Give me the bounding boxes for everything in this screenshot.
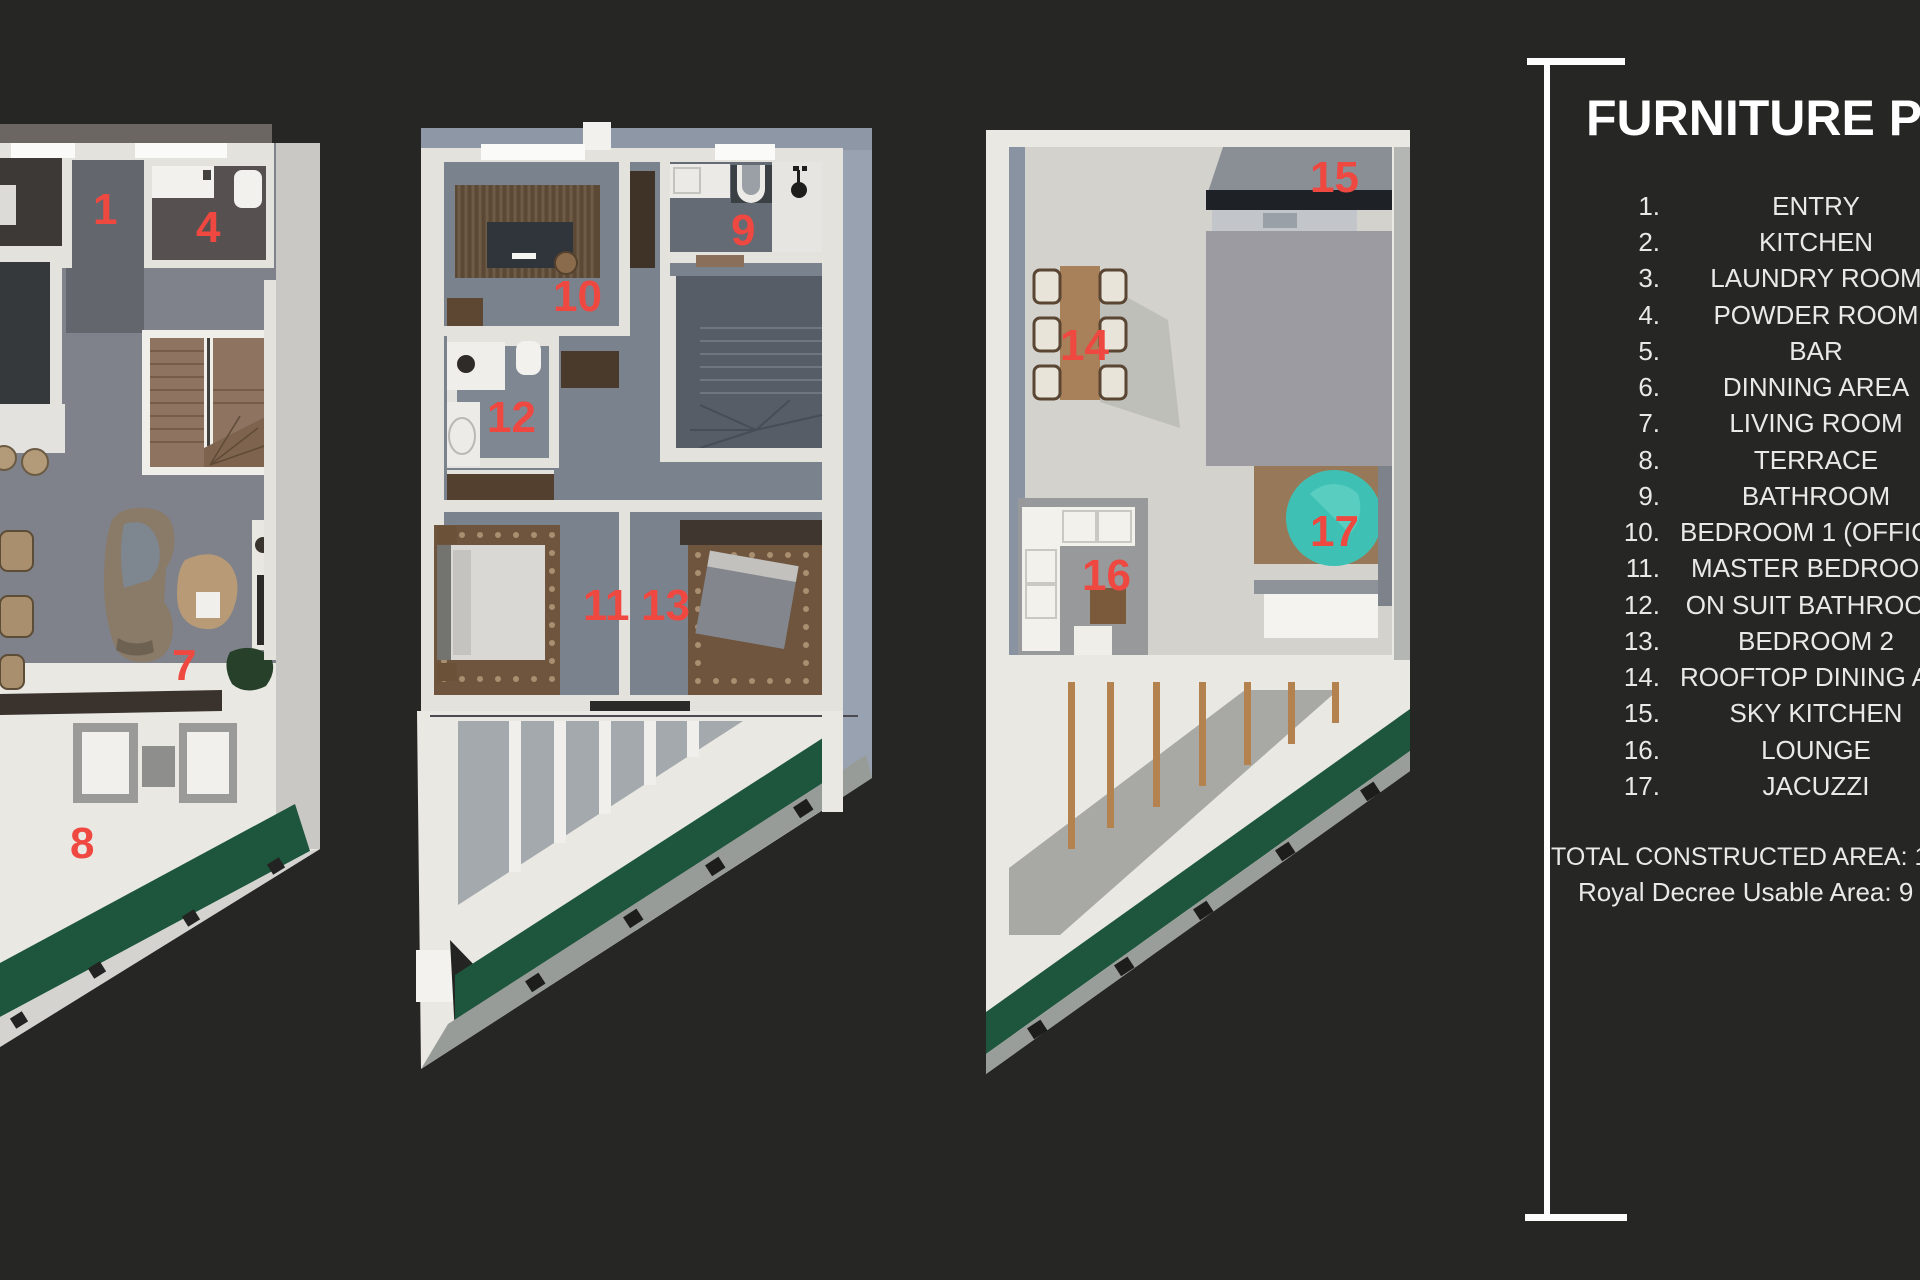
svg-text:1: 1 <box>93 185 117 234</box>
svg-text:7: 7 <box>172 641 196 690</box>
svg-text:4: 4 <box>196 203 221 252</box>
svg-text:13: 13 <box>641 581 690 630</box>
svg-text:9: 9 <box>731 206 755 255</box>
svg-text:17: 17 <box>1310 507 1359 556</box>
svg-text:12: 12 <box>487 393 536 442</box>
svg-text:16: 16 <box>1082 551 1131 600</box>
svg-text:8: 8 <box>70 819 94 868</box>
svg-text:14: 14 <box>1060 321 1109 370</box>
svg-text:11: 11 <box>583 581 630 630</box>
svg-text:10: 10 <box>553 272 602 321</box>
svg-text:15: 15 <box>1310 153 1359 202</box>
